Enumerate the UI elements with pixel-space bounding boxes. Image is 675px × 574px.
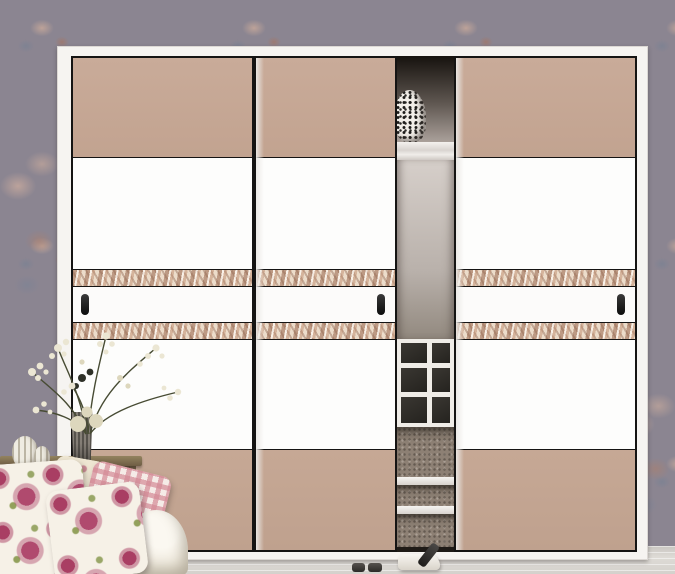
interior-lower-compartment xyxy=(397,427,454,477)
door-tan-top-panel xyxy=(73,58,252,157)
door-white-upper-panel xyxy=(256,157,395,269)
cubby-cell xyxy=(432,397,450,423)
door-tan-bottom-panel xyxy=(256,449,395,550)
wardrobe-interior xyxy=(397,56,454,552)
spotted-hat xyxy=(395,90,426,142)
cubby-cell xyxy=(432,343,450,363)
door-handle[interactable] xyxy=(81,294,89,315)
interior-top-shelf-space xyxy=(397,56,454,142)
floor-item xyxy=(368,563,382,572)
pillow-floral-2 xyxy=(45,481,150,574)
door-white-lower-panel xyxy=(456,340,635,449)
shoe-cubbies xyxy=(397,339,454,427)
cubby-cell xyxy=(401,397,427,423)
door-handle[interactable] xyxy=(377,294,385,315)
room-scene xyxy=(0,0,675,574)
interior-back-panel xyxy=(397,160,454,339)
interior-shelf xyxy=(397,142,454,160)
door-decor-strip xyxy=(256,322,395,340)
door-decor-strip xyxy=(456,322,635,340)
interior-shelf xyxy=(397,506,454,514)
door-handle-band xyxy=(256,287,395,322)
flower-bouquet xyxy=(16,328,194,436)
door-handle-band xyxy=(73,287,252,322)
door-decor-strip xyxy=(456,269,635,287)
interior-lower-compartment xyxy=(397,485,454,506)
door-tan-top-panel xyxy=(456,58,635,157)
door-decor-strip xyxy=(73,269,252,287)
cubby-cell xyxy=(432,368,450,391)
door-white-upper-panel xyxy=(456,157,635,269)
door-handle[interactable] xyxy=(617,294,625,315)
interior-lower-compartment xyxy=(397,514,454,547)
door-white-lower-panel xyxy=(256,340,395,449)
floor-item xyxy=(352,563,365,572)
door-tan-top-panel xyxy=(256,58,395,157)
door-decor-strip xyxy=(256,269,395,287)
cubby-cell xyxy=(401,368,427,391)
door-handle-band xyxy=(456,287,635,322)
sliding-door-right[interactable] xyxy=(454,56,637,552)
interior-shelf xyxy=(397,477,454,485)
sliding-door-center[interactable] xyxy=(254,56,397,552)
door-white-upper-panel xyxy=(73,157,252,269)
door-tan-bottom-panel xyxy=(456,449,635,550)
cubby-cell xyxy=(401,343,427,363)
